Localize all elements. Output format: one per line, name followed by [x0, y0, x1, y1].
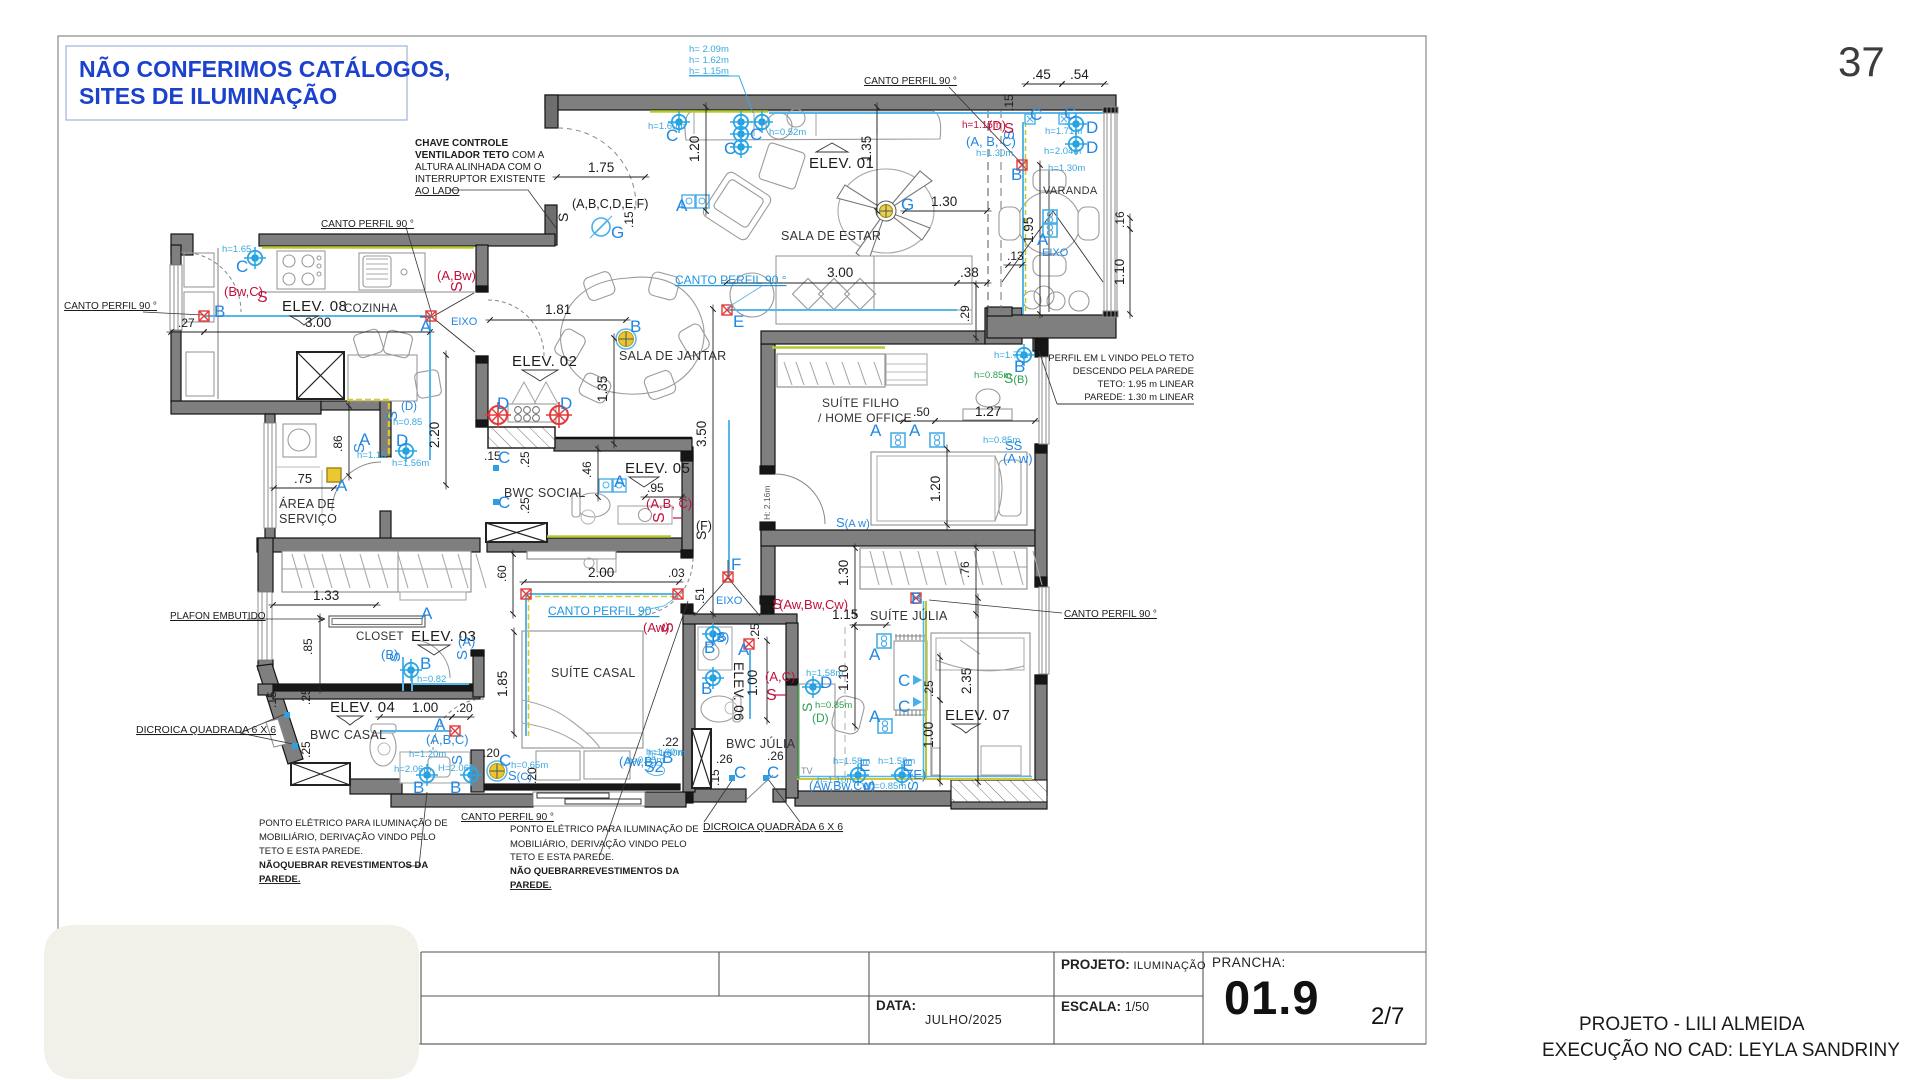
- svg-text:S(A w): S(A w): [836, 515, 870, 530]
- svg-text:.76: .76: [958, 561, 972, 578]
- svg-text:H: 2.16m: H: 2.16m: [762, 486, 772, 521]
- svg-text:A: A: [420, 317, 432, 336]
- svg-text:h=2.06m: h=2.06m: [394, 764, 431, 775]
- svg-text:.75: .75: [294, 471, 312, 486]
- svg-text:ELEV. 04: ELEV. 04: [330, 699, 395, 716]
- svg-text:(A,B,C): (A,B,C): [426, 732, 469, 747]
- svg-text:.15: .15: [265, 691, 279, 708]
- svg-text:.29: .29: [958, 305, 972, 322]
- svg-text:NÃO QUEBRARREVESTIMENTOS DA: NÃO QUEBRARREVESTIMENTOS DA: [510, 866, 679, 877]
- svg-text:EXECUÇÃO NO CAD: LEYLA SANDRIN: EXECUÇÃO NO CAD: LEYLA SANDRINY: [1542, 1039, 1900, 1061]
- svg-text:2.20: 2.20: [427, 422, 442, 448]
- svg-text:.15: .15: [1002, 94, 1016, 111]
- svg-text:D: D: [560, 394, 572, 413]
- svg-text:(A,B, C): (A,B, C): [646, 496, 692, 511]
- svg-text:01.9: 01.9: [1224, 971, 1319, 1024]
- svg-text:3.00: 3.00: [827, 265, 853, 280]
- svg-text:h=1.58m: h=1.58m: [833, 756, 870, 767]
- svg-text:h=0.85m: h=0.85m: [869, 781, 906, 792]
- svg-text:SUÍTE FILHO: SUÍTE FILHO: [822, 395, 899, 410]
- svg-text:INTERRUPTOR EXISTENTE: INTERRUPTOR EXISTENTE: [415, 174, 546, 185]
- svg-text:1.75: 1.75: [588, 160, 614, 175]
- svg-text:EIXO: EIXO: [716, 595, 743, 607]
- svg-text:h= 1.15m: h= 1.15m: [689, 66, 729, 77]
- svg-text:h=0.85m: h=0.85m: [983, 435, 1020, 446]
- svg-text:C: C: [498, 493, 510, 512]
- svg-text:1.27: 1.27: [975, 404, 1001, 419]
- svg-text:S: S: [772, 596, 782, 613]
- svg-text:C: C: [898, 697, 910, 716]
- svg-text:ELEV. 07: ELEV. 07: [945, 707, 1010, 724]
- svg-text:1.30: 1.30: [931, 194, 957, 209]
- svg-text:C: C: [1030, 105, 1042, 124]
- svg-text:1.35: 1.35: [595, 376, 610, 402]
- svg-text:PROJETO - LILI ALMEIDA: PROJETO - LILI ALMEIDA: [1579, 1014, 1805, 1035]
- svg-text:1.30: 1.30: [836, 560, 851, 586]
- svg-text:.60: .60: [495, 565, 509, 582]
- svg-text:B: B: [214, 302, 225, 321]
- svg-text:h=1.30m: h=1.30m: [976, 148, 1013, 159]
- svg-text:S: S: [387, 652, 404, 662]
- svg-text:h=0.82: h=0.82: [417, 674, 446, 685]
- svg-text:h=1.77m: h=1.77m: [994, 350, 1031, 361]
- svg-text:.13: .13: [1007, 249, 1024, 263]
- svg-text:MOBILIÁRIO, DERIVAÇÃO VINDO PE: MOBILIÁRIO, DERIVAÇÃO VINDO PELO: [259, 832, 436, 843]
- svg-text:ALTURA ALINHADA COM O: ALTURA ALINHADA COM O: [415, 162, 542, 173]
- svg-text:(A,Bw): (A,Bw): [437, 268, 476, 283]
- svg-text:C: C: [1064, 104, 1076, 123]
- svg-text:E: E: [733, 312, 744, 331]
- svg-text:h=1.71m: h=1.71m: [1045, 126, 1082, 137]
- svg-text:C: C: [498, 448, 510, 467]
- svg-text:PRANCHA:: PRANCHA:: [1212, 955, 1286, 970]
- svg-text:B: B: [701, 679, 712, 698]
- svg-text:h=1.65: h=1.65: [222, 244, 251, 255]
- svg-text:1.20: 1.20: [928, 476, 943, 502]
- svg-text:CLOSET: CLOSET: [356, 631, 404, 643]
- svg-text:37: 37: [1838, 38, 1885, 85]
- svg-text:.85: .85: [301, 638, 315, 655]
- svg-text:(A): (A): [458, 634, 475, 649]
- svg-text:S: S: [454, 650, 471, 660]
- svg-text:h=1.30m: h=1.30m: [1048, 163, 1085, 174]
- svg-text:2.35: 2.35: [959, 668, 974, 694]
- svg-text:1.00: 1.00: [745, 670, 760, 696]
- svg-text:h=0.85m: h=0.85m: [815, 700, 852, 711]
- svg-text:DATA:: DATA:: [876, 998, 916, 1013]
- svg-text:.86: .86: [331, 435, 345, 452]
- svg-text:SALA DE ESTAR: SALA DE ESTAR: [781, 229, 881, 243]
- svg-text:DICROICA QUADRADA 6 X 6: DICROICA QUADRADA 6 X 6: [136, 724, 276, 736]
- svg-text:EIXO: EIXO: [451, 316, 478, 328]
- svg-text:SITES DE ILUMINAÇÃO: SITES DE ILUMINAÇÃO: [79, 82, 337, 109]
- svg-text:B: B: [450, 778, 461, 797]
- svg-text:(D): (D): [401, 401, 417, 413]
- svg-text:.38: .38: [960, 265, 979, 280]
- svg-text:PERFIL EM L VINDO PELO TETO: PERFIL EM L VINDO PELO TETO: [1048, 353, 1194, 364]
- svg-text:.16: .16: [1113, 211, 1127, 228]
- svg-text:SALA DE JANTAR: SALA DE JANTAR: [619, 349, 726, 363]
- svg-text:ÁREA DE: ÁREA DE: [279, 496, 335, 511]
- svg-text:MOBILIÁRIO, DERIVAÇÃO VINDO PE: MOBILIÁRIO, DERIVAÇÃO VINDO PELO: [510, 839, 687, 850]
- svg-text:A: A: [869, 645, 881, 664]
- svg-text:PAREDE.: PAREDE.: [259, 874, 301, 885]
- svg-text:1.00: 1.00: [412, 700, 438, 715]
- svg-text:BWC SOCIAL: BWC SOCIAL: [504, 486, 586, 500]
- svg-text:2/7: 2/7: [1371, 1003, 1404, 1030]
- svg-text:TETO E ESTA PAREDE.: TETO E ESTA PAREDE.: [259, 846, 363, 857]
- svg-text:PROJETO: ILUMINAÇÃO: PROJETO: ILUMINAÇÃO: [1061, 957, 1206, 972]
- svg-text:PONTO ELÉTRICO PARA ILUMINAÇÃO: PONTO ELÉTRICO PARA ILUMINAÇÃO DE: [259, 818, 448, 829]
- svg-text:CANTO PERFIL 90 °: CANTO PERFIL 90 °: [321, 219, 414, 230]
- svg-text:S: S: [257, 289, 268, 306]
- svg-text:3.50: 3.50: [694, 421, 709, 447]
- svg-text:ESCALA: 1/50: ESCALA: 1/50: [1061, 999, 1149, 1014]
- svg-text:ELEV. 08: ELEV. 08: [282, 298, 347, 315]
- svg-text:S: S: [449, 281, 466, 292]
- svg-text:A: A: [738, 640, 750, 659]
- svg-text:A: A: [336, 476, 348, 495]
- svg-text:S: S: [905, 781, 922, 791]
- svg-text:(D): (D): [812, 711, 829, 725]
- svg-text:C: C: [898, 671, 910, 690]
- svg-text:G: G: [611, 223, 624, 242]
- svg-text:.25: .25: [748, 623, 762, 640]
- svg-text:.51: .51: [693, 587, 707, 604]
- svg-text:.20: .20: [483, 746, 500, 760]
- svg-text:ELEV. 06: ELEV. 06: [731, 662, 746, 721]
- svg-text:C: C: [767, 763, 779, 782]
- svg-text:.25: .25: [299, 688, 313, 705]
- svg-text:h=0.85m: h=0.85m: [974, 370, 1011, 381]
- svg-text:1.81: 1.81: [545, 302, 571, 317]
- svg-text:C: C: [750, 125, 762, 144]
- svg-text:.26: .26: [767, 749, 784, 763]
- svg-text:CANTO PERFIL 90 °: CANTO PERFIL 90 °: [1064, 609, 1157, 620]
- svg-text:3.00: 3.00: [305, 315, 331, 330]
- svg-text:B: B: [911, 589, 922, 608]
- svg-text:.50: .50: [913, 405, 930, 419]
- svg-text:h=1.58m: h=1.58m: [806, 668, 843, 679]
- svg-text:A: A: [870, 421, 882, 440]
- svg-text:A: A: [869, 707, 881, 726]
- svg-text:B: B: [1011, 165, 1022, 184]
- svg-text:.27: .27: [178, 316, 195, 330]
- svg-text:.25: .25: [518, 451, 532, 468]
- svg-text:S: S: [693, 531, 709, 540]
- svg-text:JULHO/2025: JULHO/2025: [925, 1013, 1002, 1027]
- svg-text:PAREDE.: PAREDE.: [510, 880, 552, 891]
- svg-text:.54: .54: [1070, 67, 1089, 82]
- svg-text:h=1.58m: h=1.58m: [878, 756, 915, 767]
- svg-text:.25: .25: [922, 680, 936, 697]
- svg-text:CANTO PERFIL 90 °: CANTO PERFIL 90 °: [461, 812, 554, 823]
- svg-text:B: B: [630, 317, 641, 336]
- svg-text:C: C: [734, 763, 746, 782]
- svg-text:BWC CASAL: BWC CASAL: [310, 728, 386, 742]
- svg-text:TETO: 1.95 m LINEAR: TETO: 1.95 m LINEAR: [1098, 379, 1195, 390]
- svg-text:C: C: [236, 257, 248, 276]
- svg-text:(Aw,Bw,Cw): (Aw,Bw,Cw): [779, 597, 848, 612]
- svg-text:NÃO CONFERIMOS CATÁLOGOS,: NÃO CONFERIMOS CATÁLOGOS,: [79, 55, 450, 82]
- svg-text:.15: .15: [708, 769, 722, 786]
- svg-text:h= 2.09m: h= 2.09m: [689, 44, 729, 55]
- svg-text:CANTO PERFIL 90 °: CANTO PERFIL 90 °: [548, 604, 660, 618]
- svg-text:VARANDA: VARANDA: [1043, 185, 1098, 197]
- svg-text:h=1.20m: h=1.20m: [409, 749, 446, 760]
- svg-text:COZINHA: COZINHA: [344, 303, 398, 315]
- svg-text:NÃOQUEBRAR REVESTIMENTOS DA: NÃOQUEBRAR REVESTIMENTOS DA: [259, 860, 428, 871]
- svg-text:S: S: [555, 213, 571, 222]
- svg-text:(A,B,C,D,E,F): (A,B,C,D,E,F): [572, 197, 648, 211]
- svg-text:CANTO PERFIL 90 °: CANTO PERFIL 90 °: [675, 273, 787, 287]
- svg-text:h=1.00m: h=1.00m: [646, 747, 683, 758]
- svg-text:1.95: 1.95: [1021, 217, 1036, 243]
- svg-text:DESCENDO PELA PAREDE: DESCENDO PELA PAREDE: [1073, 366, 1194, 377]
- svg-text:(E): (E): [909, 767, 926, 782]
- svg-text:h=1.15: h=1.15: [357, 450, 386, 461]
- svg-text:ELEV. 05: ELEV. 05: [625, 460, 690, 477]
- svg-text:1.20: 1.20: [687, 136, 702, 162]
- svg-text:.03: .03: [668, 566, 685, 580]
- svg-text:D: D: [1086, 118, 1098, 137]
- svg-text:CANTO PERFIL 90 °: CANTO PERFIL 90 °: [64, 301, 157, 312]
- svg-text:VENTILADOR TETO COM A: VENTILADOR TETO COM A: [415, 150, 545, 161]
- svg-text:1.85: 1.85: [495, 671, 510, 697]
- svg-text:D: D: [1086, 138, 1098, 157]
- svg-text:SERVIÇO: SERVIÇO: [279, 512, 337, 526]
- svg-text:.46: .46: [580, 461, 594, 478]
- svg-text:D: D: [497, 394, 509, 413]
- svg-text:CHAVE CONTROLE: CHAVE CONTROLE: [415, 138, 508, 149]
- svg-text:S: S: [660, 622, 677, 633]
- svg-text:SUÍTE JÚLIA: SUÍTE JÚLIA: [870, 608, 948, 623]
- svg-text:A: A: [676, 196, 688, 215]
- svg-text:A: A: [614, 472, 626, 491]
- svg-text:PLAFON EMBUTIDO: PLAFON EMBUTIDO: [170, 611, 266, 622]
- svg-text:h=2.04m: h=2.04m: [1044, 146, 1081, 157]
- svg-text:AO LADO: AO LADO: [415, 186, 460, 197]
- svg-text:C: C: [724, 139, 736, 158]
- svg-text:DICROICA QUADRADA 6 X 6: DICROICA QUADRADA 6 X 6: [703, 821, 843, 833]
- svg-text:BWC JÚLIA: BWC JÚLIA: [726, 736, 796, 751]
- svg-text:.45: .45: [1032, 67, 1051, 82]
- svg-text:h=0.85: h=0.85: [393, 417, 422, 428]
- svg-text:D: D: [396, 431, 408, 450]
- svg-text:/ HOME OFFICE: / HOME OFFICE: [818, 411, 912, 425]
- svg-text:h=1.60m: h=1.60m: [648, 121, 685, 132]
- svg-text:TV: TV: [801, 766, 813, 776]
- svg-text:h=1.10m: h=1.10m: [817, 775, 854, 786]
- svg-text:H=2.06m: H=2.06m: [438, 763, 477, 774]
- svg-text:(A w): (A w): [1003, 451, 1033, 466]
- svg-text:TETO E ESTA PAREDE.: TETO E ESTA PAREDE.: [510, 852, 614, 863]
- svg-text:S: S: [718, 629, 727, 644]
- svg-text:2.00: 2.00: [588, 565, 614, 580]
- svg-text:(A,C): (A,C): [765, 669, 795, 684]
- svg-text:h=0.65m: h=0.65m: [511, 760, 548, 771]
- svg-text:1.33: 1.33: [313, 588, 339, 603]
- svg-text:A: A: [909, 421, 921, 440]
- svg-text:h=0.52m: h=0.52m: [769, 127, 806, 138]
- svg-text:h= 1.62m: h= 1.62m: [689, 55, 729, 66]
- svg-text:h=1.56m: h=1.56m: [392, 458, 429, 469]
- svg-text:.26: .26: [716, 752, 733, 766]
- svg-text:1.10: 1.10: [1112, 259, 1127, 285]
- svg-text:.20: .20: [456, 701, 473, 715]
- svg-text:ELEV. 02: ELEV. 02: [512, 353, 577, 370]
- svg-text:.25: .25: [299, 741, 313, 758]
- svg-text:G: G: [901, 195, 914, 214]
- svg-text:S: S: [1004, 120, 1014, 137]
- svg-text:A: A: [421, 604, 433, 623]
- svg-text:F: F: [731, 555, 741, 574]
- svg-text:EIXO: EIXO: [1042, 247, 1069, 259]
- svg-text:PAREDE: 1.30 m LINEAR: PAREDE: 1.30 m LINEAR: [1084, 392, 1194, 403]
- svg-text:PONTO ELÉTRICO PARA ILUMINAÇÃO: PONTO ELÉTRICO PARA ILUMINAÇÃO DE: [510, 824, 699, 835]
- svg-text:1.00: 1.00: [921, 722, 936, 748]
- svg-text:ELEV. 01: ELEV. 01: [809, 155, 874, 172]
- svg-text:S: S: [651, 512, 668, 523]
- svg-text:SUÍTE CASAL: SUÍTE CASAL: [551, 665, 636, 680]
- svg-text:CANTO PERFIL 90 °: CANTO PERFIL 90 °: [864, 76, 957, 87]
- svg-text:B: B: [420, 654, 431, 673]
- svg-text:B: B: [413, 778, 424, 797]
